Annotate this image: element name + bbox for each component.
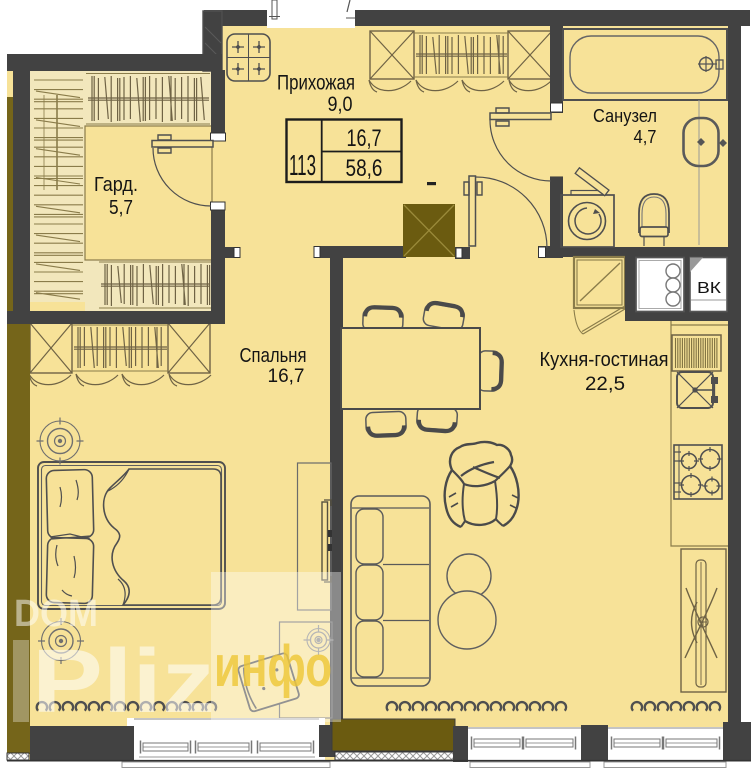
svg-text:113: 113 — [289, 150, 316, 182]
svg-text:22,5: 22,5 — [585, 373, 625, 395]
svg-text:4,7: 4,7 — [634, 126, 657, 147]
svg-text:DOM: DOM — [14, 593, 98, 635]
svg-text:58,6: 58,6 — [346, 155, 383, 182]
svg-text:Спальня: Спальня — [240, 344, 307, 367]
svg-text:инфо: инфо — [214, 634, 332, 699]
svg-text:Прихожая: Прихожая — [277, 71, 355, 95]
svg-text:Кухня-гостиная: Кухня-гостиная — [540, 348, 669, 371]
svg-text:16,7: 16,7 — [347, 125, 382, 152]
svg-text:9,0: 9,0 — [328, 93, 353, 116]
svg-text:Pliz: Pliz — [32, 632, 215, 732]
svg-text:Санузел: Санузел — [593, 105, 657, 126]
svg-text:5,7: 5,7 — [109, 196, 133, 219]
svg-text:16,7: 16,7 — [268, 365, 305, 387]
svg-text:Гард.: Гард. — [94, 173, 138, 196]
svg-text:ВК: ВК — [697, 280, 722, 297]
